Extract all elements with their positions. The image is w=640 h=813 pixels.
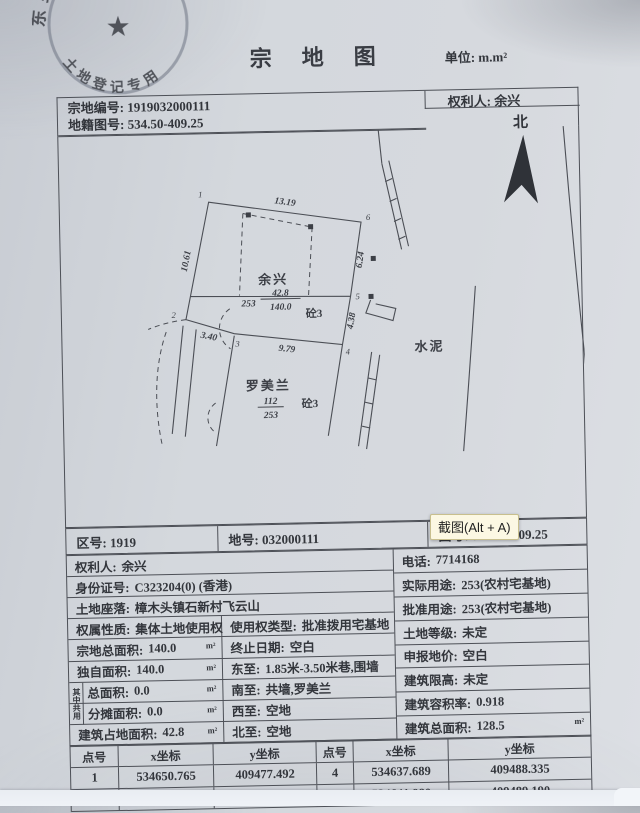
coord-cell: 409477.492: [214, 763, 317, 786]
ownership-value: 集体土地使用权: [135, 617, 223, 638]
unit-label: 单位:: [445, 50, 476, 66]
east-boundary-value: 1.85米-3.50米巷,围墙: [265, 656, 379, 677]
holder-label: 权利人:: [75, 556, 117, 576]
shared-group-vertical-label: 其中共用: [70, 683, 84, 725]
info-right-column: 电话:7714168 实际用途:253(农村宅基地) 批准用途:253(农村宅基…: [392, 546, 590, 740]
bottom-overlay-corner: [614, 788, 640, 806]
dim-right-lower: 4.38: [346, 312, 359, 331]
holder-value: 余兴: [121, 555, 146, 574]
land-grade-label: 土地等级:: [403, 622, 458, 642]
use-right-type-label: 使用权类型:: [230, 615, 297, 635]
neighbor-parcel-lines: [148, 307, 345, 448]
coord-cell: 4: [317, 762, 354, 784]
south-boundary-value: 共墙,罗美兰: [265, 678, 331, 698]
dim-bottom-left: 3.40: [199, 331, 218, 344]
point-6: 6: [366, 212, 371, 222]
apportioned-label: 分摊面积:: [88, 703, 143, 723]
shared-total-label: 总面积:: [87, 682, 129, 702]
dim-bottom: 9.79: [278, 344, 296, 356]
plot-ratio-value: 0.918: [476, 695, 504, 711]
point-2: 2: [172, 310, 177, 320]
coord-cell: 534637.689: [354, 760, 449, 783]
parcel-identifiers: 宗地编号: 1919032000111 地籍图号: 534.50-409.25: [68, 97, 211, 134]
location-label: 土地座落:: [76, 598, 131, 618]
point-3: 3: [234, 339, 239, 349]
shared-total-value: 0.0: [134, 684, 150, 699]
south-boundary-label: 南至:: [231, 679, 261, 699]
parcel-map-sheet: ★ 东莞市 土地登记专用 宗地图 单位: m.m² 宗地编号: 19190320…: [0, 0, 640, 812]
declared-price-label: 申报地价:: [403, 646, 458, 666]
gross-floor-unit: m²: [574, 716, 584, 726]
north-label: 北: [513, 111, 528, 132]
coord-cell: 534650.765: [119, 765, 214, 788]
total-area-unit: m²: [206, 641, 216, 651]
land-grade-value: 未定: [462, 621, 487, 640]
col-point-a: 点号: [70, 745, 118, 767]
zone-value: 1919: [110, 535, 136, 551]
zone-label: 区号:: [76, 535, 107, 551]
rights-holder-cell: 权利人: 余兴: [424, 88, 579, 109]
unit-note: 单位: m.m²: [445, 46, 508, 66]
lot-value: 032000111: [262, 531, 319, 547]
stamp-star-icon: ★: [105, 12, 131, 43]
phone-value: 7714168: [436, 552, 480, 568]
phone-label: 电话:: [401, 551, 431, 571]
neighbor-fraction-denominator: 253: [263, 411, 279, 421]
cadastral-number-value: 534.50-409.25: [127, 115, 203, 132]
ownership-label: 权属性质:: [76, 619, 131, 639]
west-boundary-label: 西至:: [232, 701, 262, 721]
id-value: C323204(0) (香港): [134, 574, 232, 595]
owner-structure: 砼3: [306, 306, 323, 320]
unit-value: m.m²: [478, 49, 507, 65]
end-date-label: 终止日期:: [230, 637, 285, 657]
end-date-value: 空白: [290, 636, 315, 655]
cadastral-number-label: 地籍图号:: [68, 117, 125, 133]
height-limit-value: 未定: [463, 669, 488, 688]
point-4: 4: [346, 346, 351, 356]
apportioned-value: 0.0: [147, 705, 163, 720]
screenshot-tooltip: 截图(Alt + A): [430, 514, 519, 540]
dim-top: 13.19: [274, 196, 297, 209]
north-boundary-label: 北至:: [232, 722, 262, 742]
rights-holder-name: 余兴: [494, 93, 520, 109]
lot-cell: 地号: 032000111: [218, 522, 428, 551]
actual-use-label: 实际用途:: [402, 574, 457, 594]
neighbor-name: 罗美兰: [246, 378, 291, 394]
owner-area-building: 42.8: [271, 289, 289, 299]
sole-area-value: 140.0: [136, 662, 164, 678]
footprint-unit: m²: [207, 725, 217, 735]
cement-label: 水泥: [414, 338, 444, 354]
rights-holder-label: 权利人:: [447, 94, 491, 110]
gross-floor-value: 128.5: [476, 718, 504, 734]
col-y-b: y坐标: [448, 736, 590, 760]
use-right-type-value: 批准拨用宅基地: [302, 614, 390, 635]
survey-map-box: 北: [57, 126, 587, 528]
dim-left: 10.61: [180, 250, 194, 273]
footprint-value: 42.8: [162, 725, 184, 740]
point-1: 1: [198, 189, 202, 199]
stamp-arc-top-text: 东莞市: [30, 0, 77, 28]
col-y-a: y坐标: [213, 741, 316, 764]
lot-label: 地号:: [228, 532, 259, 548]
sole-area-unit: m²: [206, 662, 216, 672]
owner-name: 余兴: [257, 272, 288, 288]
total-area-value: 140.0: [148, 641, 176, 657]
id-label: 身份证号:: [75, 577, 130, 597]
height-limit-label: 建筑限高:: [404, 670, 459, 690]
parcel-info-table: 权利人:余兴 身份证号:C323204(0) (香港) 土地座落:樟木头镇石新村…: [66, 545, 592, 747]
apportioned-unit: m²: [207, 704, 217, 714]
boundary-line-right: [563, 126, 588, 448]
coord-cell: 1: [71, 767, 119, 789]
location-value: 樟木头镇石新村飞云山: [135, 595, 260, 617]
total-area-label: 宗地总面积:: [76, 640, 143, 660]
gross-floor-label: 建筑总面积:: [405, 717, 472, 737]
neighbor-fraction-numerator: 112: [264, 397, 278, 407]
parcel-number-label: 宗地编号:: [68, 100, 125, 116]
actual-use-value: 253(农村宅基地): [461, 572, 551, 593]
west-boundary-value: 空地: [266, 700, 291, 719]
north-arrow-icon: [498, 132, 546, 209]
cadastral-number-line: 地籍图号: 534.50-409.25: [68, 114, 211, 134]
approved-use-label: 批准用途:: [402, 598, 457, 618]
parcel-number-value: 1919032000111: [127, 98, 210, 115]
shared-total-unit: m²: [207, 683, 217, 693]
dim-right-upper: 6.24: [355, 251, 367, 269]
col-x-a: x坐标: [118, 743, 213, 766]
col-x-b: x坐标: [353, 738, 448, 761]
east-boundary-label: 东至:: [231, 658, 261, 678]
svg-text:东莞市: 东莞市: [30, 0, 77, 28]
neighbor-structure: 砼3: [302, 396, 319, 410]
road-and-steps-features: [352, 126, 588, 454]
sole-area-label: 独自面积:: [77, 661, 132, 681]
point-5: 5: [355, 291, 359, 301]
info-left-column: 权利人:余兴 身份证号:C323204(0) (香港) 土地座落:樟木头镇石新村…: [67, 550, 396, 746]
owner-landuse-code: 253: [240, 299, 256, 309]
zone-cell: 区号: 1919: [66, 526, 218, 554]
neighbor-parcel-labels: 罗美兰 112 253 砼3: [246, 377, 319, 421]
owner-area-total: 140.0: [270, 303, 292, 313]
plot-ratio-label: 建筑容积率:: [404, 693, 471, 713]
coord-cell: 409488.335: [449, 758, 591, 782]
declared-price-value: 空白: [462, 645, 487, 664]
approved-use-value: 253(农村宅基地): [462, 596, 552, 617]
footprint-label: 建筑占地面积:: [78, 724, 158, 745]
boundary-line-middle: [460, 286, 478, 451]
north-boundary-value: 空地: [266, 721, 291, 740]
bottom-overlay-strip: [0, 790, 640, 806]
col-point-b: 点号: [316, 740, 353, 762]
